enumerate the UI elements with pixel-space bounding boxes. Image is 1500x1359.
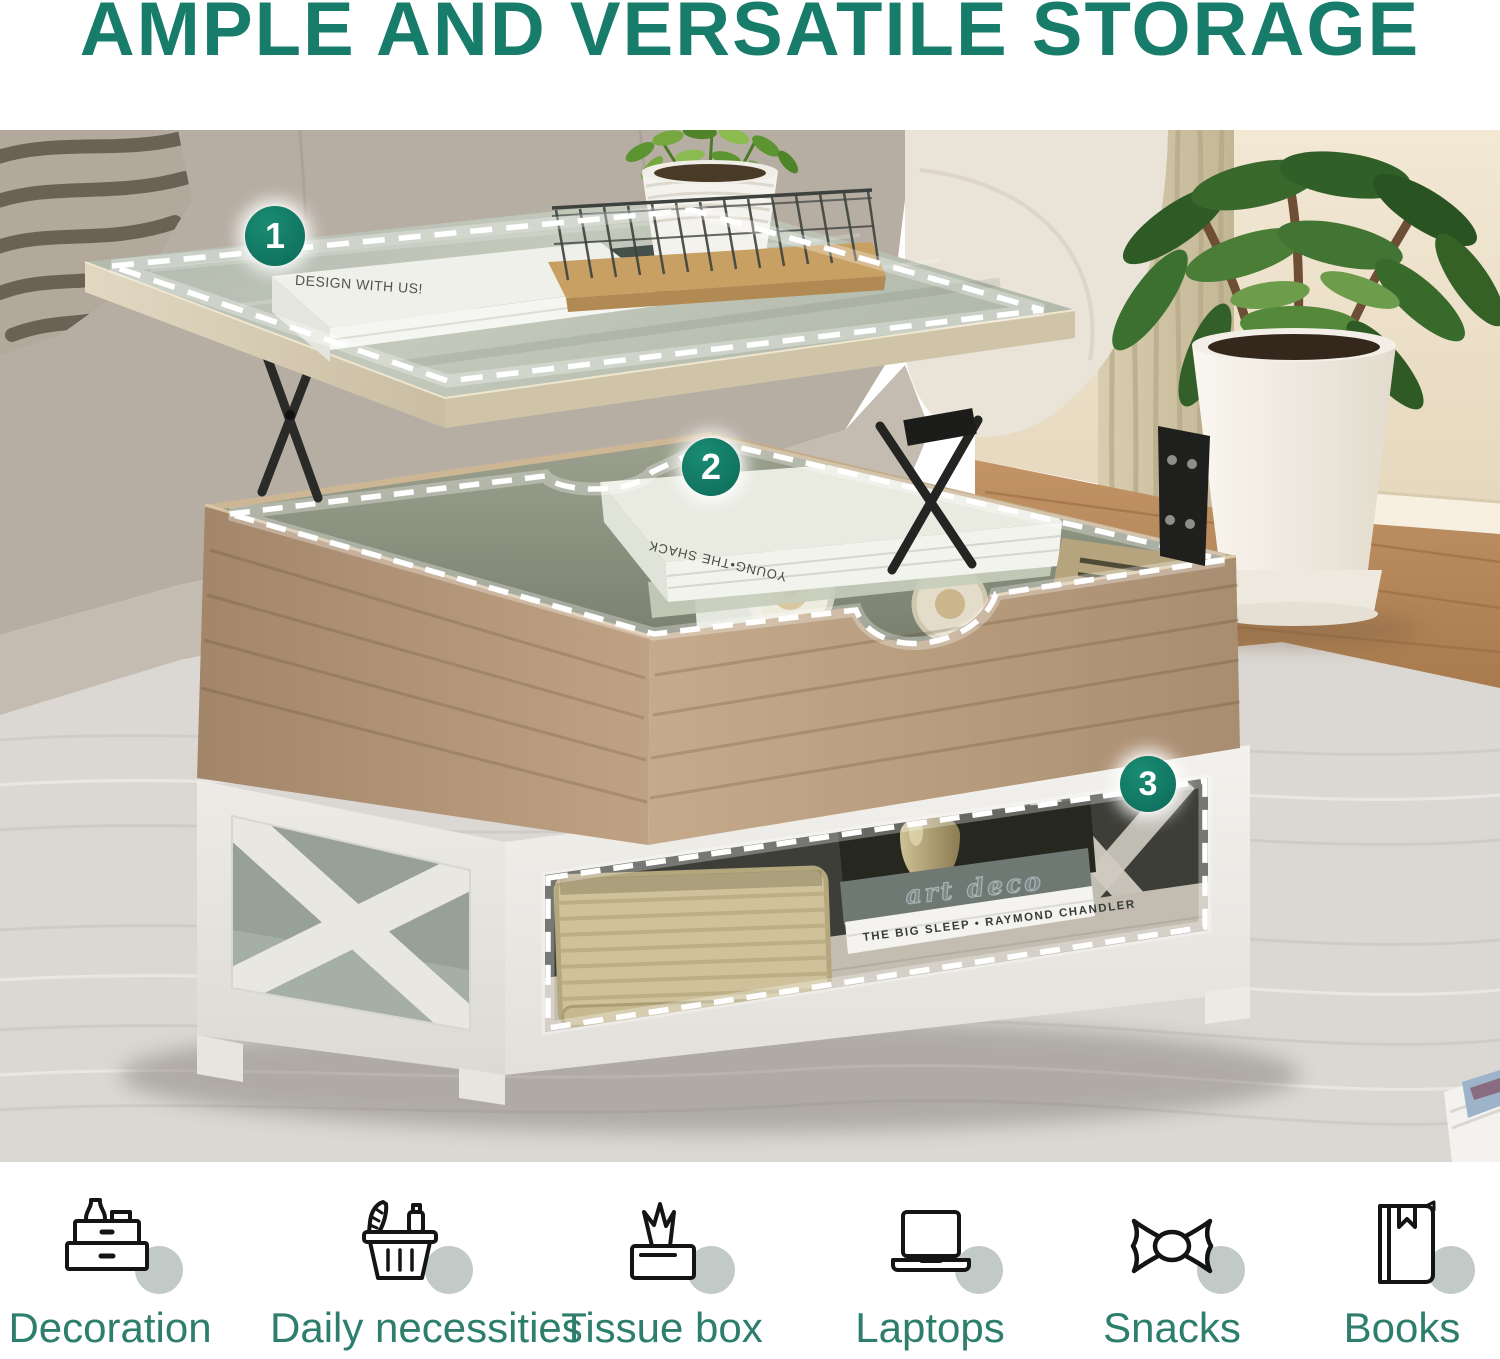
feature-decoration: Decoration <box>0 1190 240 1352</box>
feature-row: Decoration Daily necessities <box>0 1190 1500 1359</box>
product-infographic: AMPLE AND VERSATILE STORAGE <box>0 0 1500 1359</box>
feature-label: Daily necessities <box>270 1304 530 1352</box>
feature-daily-necessities: Daily necessities <box>270 1190 530 1352</box>
page-title: AMPLE AND VERSATILE STORAGE <box>0 0 1500 70</box>
product-photo: 1 2 3 DESIGN WITH US! YOUNG•THE SHACK ar… <box>0 130 1500 1162</box>
feature-label: Decoration <box>0 1304 240 1352</box>
storage-marker-1: 1 <box>245 206 305 266</box>
storage-marker-3: 3 <box>1120 756 1176 812</box>
feature-label: Tissue box <box>532 1304 792 1352</box>
feature-tissue-box: Tissue box <box>532 1190 792 1352</box>
shopping-basket-icon <box>348 1196 452 1292</box>
tissue-box-icon <box>612 1196 712 1292</box>
feature-label: Books <box>1272 1304 1500 1352</box>
living-room-scene <box>0 130 1500 1162</box>
feature-label: Snacks <box>1042 1304 1302 1352</box>
candy-icon <box>1120 1196 1224 1292</box>
feature-snacks: Snacks <box>1042 1190 1302 1352</box>
storage-marker-2: 2 <box>682 438 740 496</box>
book-icon <box>1352 1196 1452 1292</box>
feature-laptops: Laptops <box>800 1190 1060 1352</box>
decoration-stand-icon <box>55 1196 165 1292</box>
feature-books: Books <box>1272 1190 1500 1352</box>
feature-label: Laptops <box>800 1304 1060 1352</box>
laptop-icon <box>880 1196 980 1292</box>
